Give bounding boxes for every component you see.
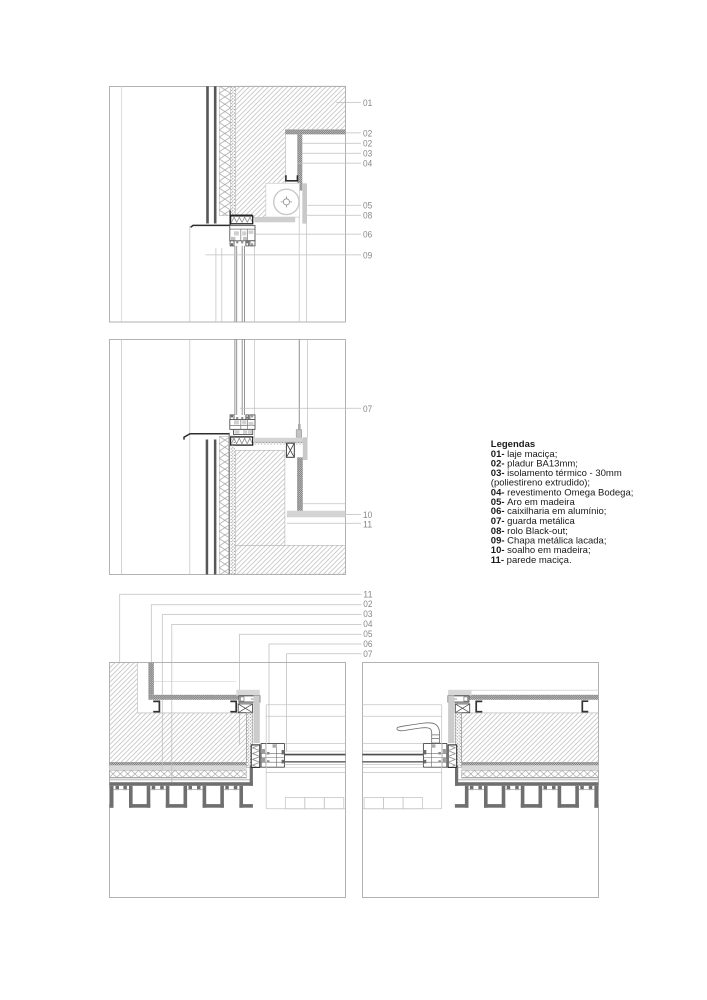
svg-text:11: 11 [363,520,372,531]
svg-text:01: 01 [363,98,372,109]
svg-text:08: 08 [363,211,372,222]
svg-text:09: 09 [363,250,372,261]
svg-text:11- parede maciça.: 11- parede maciça. [491,555,572,566]
svg-text:07: 07 [363,404,372,415]
svg-text:04: 04 [363,159,372,170]
svg-text:07: 07 [363,649,372,660]
svg-text:06: 06 [363,230,372,241]
